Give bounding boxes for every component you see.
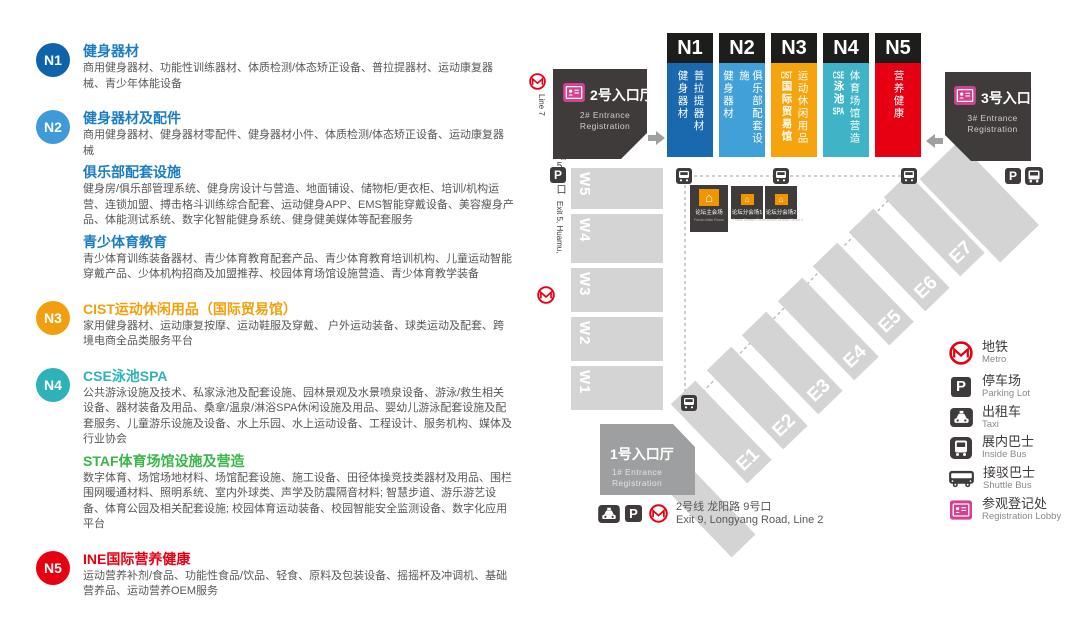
legend-metro: 地铁Metro [948, 340, 1008, 365]
bus-stop-icon [676, 168, 692, 184]
hall-n2-text: 健身器材 [721, 70, 734, 157]
group-desc: 家用健身器材、运动康复按摩、运动鞋服及穿戴、 户外运动装备、球类运动及配套、跨境… [83, 319, 514, 350]
parking-icon: P [1005, 168, 1021, 184]
entrance-hall-2: 2号入口厅 2# EntranceRegistration [553, 69, 647, 159]
hall-badge-n1: N1 [36, 43, 70, 77]
group-desc: 青少体育训练装备器材、青少体育教育配套产品、青少体育教育培训机构、儿童运动智能穿… [83, 252, 514, 283]
group-desc: 数字体育、场馆场地材料、场馆配套设施、施工设备、田径体操竞技类器材及用品、围栏围… [83, 471, 514, 533]
hall-w4: W4 [571, 214, 663, 263]
group-title: CSE泳池SPA [83, 367, 514, 386]
registration-badge-icon [948, 500, 974, 520]
hall-n2: N2 健身器材 俱乐部配套设施 [719, 33, 765, 157]
hall-n2-text: 俱乐部配套设施 [737, 70, 763, 157]
legend-taxi: 出租车Taxi [948, 405, 1021, 430]
house-icon: ⌂ [775, 194, 788, 205]
legend-inside-bus: 展内巴士Inside Bus [948, 435, 1034, 460]
bus-stop-icon [773, 168, 789, 184]
legend-parking: P 停车场Parking Lot [948, 374, 1030, 399]
bus-icon [1025, 167, 1043, 190]
parking-icon: P [550, 167, 566, 183]
expo-floorplan-page: N1 健身器材 商用健身器材、功能性训练器材、体质检测/体态矫正设备、普拉提器材… [0, 0, 1080, 578]
bus-stop-icon [681, 395, 697, 411]
taxi-icon [598, 505, 620, 528]
section-n1: N1 健身器材 商用健身器材、功能性训练器材、体质检测/体态矫正设备、普拉提器材… [36, 42, 514, 96]
station-line2-label: 2号线 龙阳路 9号口 Exit 9, Longyang Road, Line … [676, 501, 823, 527]
hall-n4-text: CSE泳池SPA [832, 70, 845, 157]
group-title: 健身器材及配件 [83, 109, 514, 128]
metro-icon [537, 286, 555, 309]
group-desc: 运动营养补剂/食品、功能性食品/饮品、轻食、原料及包装设备、摇摇杯及冲调机、基础… [83, 569, 514, 600]
hall-n1-label: N1 [667, 33, 713, 63]
forum-branch-room-1: ⌂ 论坛分会场1 Forum Branch Room 1 [731, 186, 763, 219]
hall-w3: W3 [571, 268, 663, 312]
hall-n4-text: 体育场馆营造 [848, 70, 861, 157]
hall-badge-n3: N3 [36, 301, 70, 335]
metro-icon [649, 504, 668, 528]
inside-bus-icon [948, 437, 974, 459]
shuttle-bus-icon [948, 468, 975, 489]
entrance-2-subtitle: 2# EntranceRegistration [563, 110, 647, 132]
hall-n3-text: CIST国际贸易馆 [780, 70, 793, 157]
floorplan-map: E1 E2 E3 E4 E5 [528, 0, 1080, 578]
house-icon: ⌂ [741, 194, 754, 205]
legend-shuttle-bus: 接驳巴士Shuttle Bus [948, 466, 1035, 491]
group-title: 青少体育教育 [83, 233, 514, 252]
bus-stop-icon [901, 168, 917, 184]
group-title: CIST运动休闲用品（国际贸易馆） [83, 300, 514, 319]
group-desc: 商用健身器材、功能性训练器材、体质检测/体态矫正设备、普拉提器材、运动康复器械、… [83, 61, 514, 92]
hall-w1: W1 [571, 366, 663, 410]
hall-w2: W2 [571, 317, 663, 361]
metro-icon [948, 341, 974, 365]
metro-icon [529, 73, 546, 95]
taxi-icon [948, 408, 974, 427]
hall-badge-n4: N4 [36, 368, 70, 402]
section-n3: N3 CIST运动休闲用品（国际贸易馆） 家用健身器材、运动康复按摩、运动鞋服及… [36, 300, 514, 354]
hall-n4: N4 CSE泳池SPA 体育场馆营造 [823, 33, 869, 157]
entrance-hall-1: 1号入口厅 1# EntranceRegistration [600, 424, 695, 495]
forum-branch-room-2: ⌂ 论坛分会场2 Forum Branch Room 2 [765, 186, 797, 219]
entrance-1-title: 1号入口厅 [610, 444, 695, 464]
group-title: 俱乐部配套设施 [83, 163, 514, 182]
hall-n2-label: N2 [719, 33, 765, 63]
house-icon: ⌂ [699, 189, 719, 206]
section-n4: N4 CSE泳池SPA 公共游泳设施及技术、私家泳池及配套设施、园林景观及水景喷… [36, 367, 514, 537]
entrance-3-subtitle: 3# EntranceRegistration [954, 113, 1031, 135]
section-n5: N5 INE国际营养健康 运动营养补剂/食品、功能性食品/饮品、轻食、原料及包装… [36, 550, 514, 604]
group-title: STAF体育场馆设施及营造 [83, 452, 514, 471]
hall-n5: N5 营养健康 [875, 33, 921, 157]
forum-main-room: ⌂ 论坛主会场 Forum Main Room [690, 185, 728, 232]
arrow-right-icon [648, 131, 665, 145]
hall-n5-text: 营养健康 [892, 70, 905, 157]
hall-n1-text: 普拉提器材 [692, 70, 705, 157]
entrance-2-title: 2号入口厅 [590, 85, 654, 105]
hall-w5: W5 [571, 168, 663, 209]
group-desc: 公共游泳设施及技术、私家泳池及配套设施、园林景观及水景喷泉设备、游泳/救生相关设… [83, 386, 514, 448]
arrow-left-icon [926, 134, 943, 148]
group-desc: 健身房/俱乐部管理系统、健身房设计与营造、地面铺设、储物柜/更衣柜、培训/机构运… [83, 182, 514, 229]
hall-directory-panel: N1 健身器材 商用健身器材、功能性训练器材、体质检测/体态矫正设备、普拉提器材… [36, 42, 514, 617]
entrance-1-subtitle: 1# EntranceRegistration [612, 467, 695, 489]
group-desc: 商用健身器材、健身器材零配件、健身器材小件、体质检测/体态矫正设备、运动康复器械 [83, 128, 514, 159]
hall-n1: N1 健身器材 普拉提器材 [667, 33, 713, 157]
group-title: INE国际营养健康 [83, 550, 514, 569]
hall-badge-n2: N2 [36, 110, 70, 144]
parking-icon: P [948, 377, 974, 397]
legend-registration: 参观登记处Registration Lobby [948, 497, 1061, 522]
hall-n4-label: N4 [823, 33, 869, 63]
hall-n5-label: N5 [875, 33, 921, 63]
parking-icon: P [625, 505, 642, 522]
registration-badge-icon [563, 83, 585, 107]
group-title: 健身器材 [83, 42, 514, 61]
hall-n1-text: 健身器材 [676, 70, 689, 157]
section-n2: N2 健身器材及配件 商用健身器材、健身器材零配件、健身器材小件、体质检测/体态… [36, 109, 514, 287]
hall-n3: N3 CIST国际贸易馆 运动休闲用品 [771, 33, 817, 157]
entrance-hall-3: 3号入口厅 3# EntranceRegistration [945, 72, 1031, 161]
hall-n3-label: N3 [771, 33, 817, 63]
registration-badge-icon [954, 86, 976, 110]
hall-n3-text: 运动休闲用品 [796, 70, 809, 157]
hall-badge-n5: N5 [36, 551, 70, 585]
